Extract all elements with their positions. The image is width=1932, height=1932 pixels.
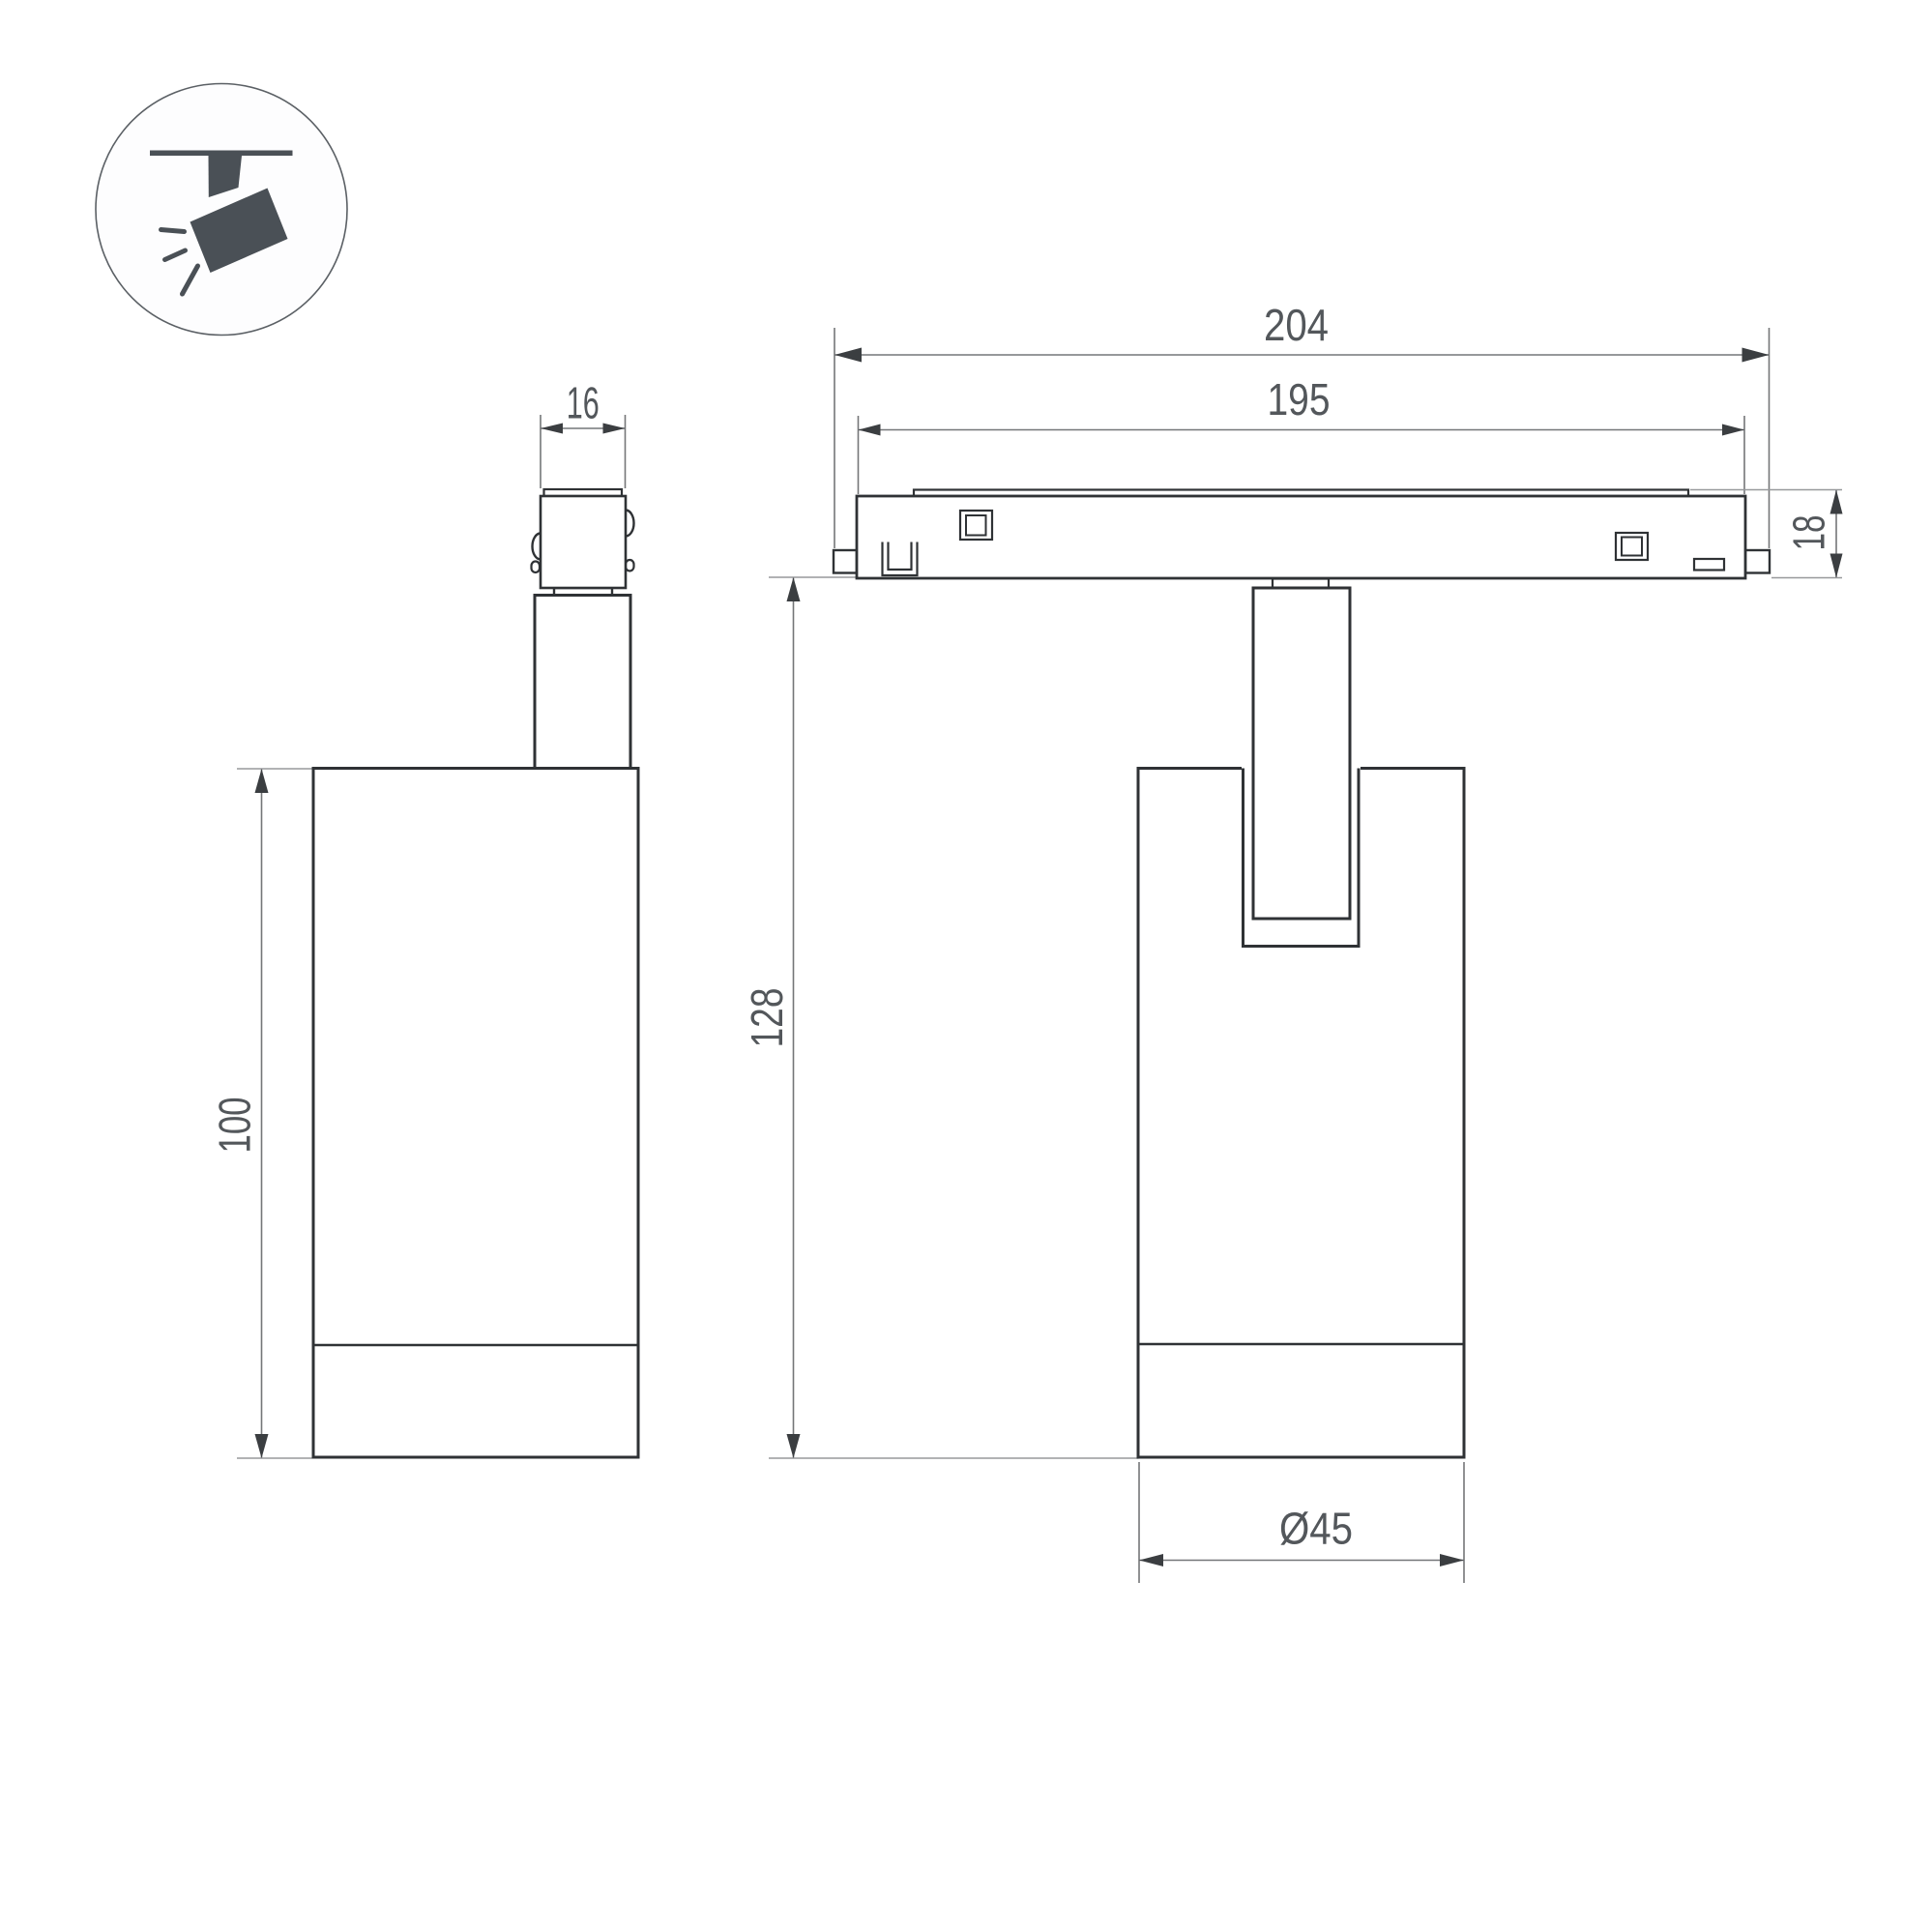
svg-text:128: 128 — [742, 988, 792, 1048]
svg-text:195: 195 — [1268, 374, 1331, 424]
svg-text:204: 204 — [1264, 300, 1329, 350]
svg-text:100: 100 — [210, 1098, 260, 1154]
svg-text:18: 18 — [1784, 515, 1834, 551]
svg-text:16: 16 — [567, 378, 600, 428]
svg-text:Ø45: Ø45 — [1279, 1504, 1353, 1554]
